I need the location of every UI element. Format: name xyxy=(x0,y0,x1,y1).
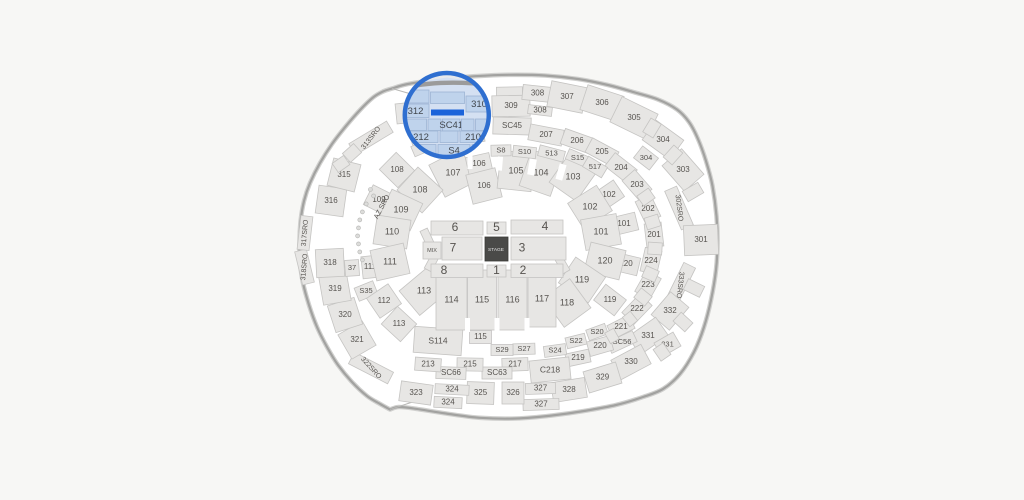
svg-text:220: 220 xyxy=(593,341,607,350)
svg-text:320: 320 xyxy=(338,310,352,319)
svg-text:SC45: SC45 xyxy=(502,121,523,130)
svg-text:101: 101 xyxy=(617,219,631,228)
svg-text:108: 108 xyxy=(390,165,404,174)
svg-text:S22: S22 xyxy=(569,336,582,345)
svg-text:37: 37 xyxy=(348,263,356,272)
svg-text:S35: S35 xyxy=(359,286,372,295)
svg-text:S20: S20 xyxy=(590,327,603,336)
svg-text:330: 330 xyxy=(624,357,638,366)
svg-text:307: 307 xyxy=(560,92,574,101)
svg-text:120: 120 xyxy=(597,255,612,265)
svg-text:C218: C218 xyxy=(540,364,561,374)
svg-text:106: 106 xyxy=(472,159,486,168)
svg-text:1: 1 xyxy=(493,263,500,277)
svg-text:204: 204 xyxy=(614,163,628,172)
svg-text:S114: S114 xyxy=(428,335,447,345)
svg-text:221: 221 xyxy=(614,322,628,331)
svg-text:332: 332 xyxy=(663,306,677,315)
svg-text:8: 8 xyxy=(441,263,448,277)
svg-text:207: 207 xyxy=(539,130,553,139)
svg-text:201: 201 xyxy=(647,230,661,239)
svg-text:203: 203 xyxy=(630,180,644,189)
svg-text:107: 107 xyxy=(445,167,460,177)
svg-text:325: 325 xyxy=(474,388,488,397)
svg-text:104: 104 xyxy=(533,167,548,177)
svg-text:101: 101 xyxy=(593,226,608,236)
svg-text:327: 327 xyxy=(534,384,548,393)
svg-text:116: 116 xyxy=(505,294,519,304)
svg-text:110: 110 xyxy=(385,226,399,236)
svg-text:329: 329 xyxy=(596,373,610,382)
svg-text:305: 305 xyxy=(627,113,641,122)
svg-text:309: 309 xyxy=(504,101,518,110)
svg-text:S29: S29 xyxy=(495,345,508,354)
svg-text:308: 308 xyxy=(533,106,547,115)
svg-text:304: 304 xyxy=(640,153,653,162)
svg-text:222: 222 xyxy=(630,304,644,313)
svg-text:6: 6 xyxy=(452,220,459,234)
svg-text:113: 113 xyxy=(417,285,431,295)
svg-text:326: 326 xyxy=(506,388,520,397)
svg-text:2: 2 xyxy=(520,263,527,277)
svg-text:304: 304 xyxy=(656,135,670,144)
svg-text:102: 102 xyxy=(582,201,597,211)
svg-text:318: 318 xyxy=(323,258,337,267)
svg-text:321: 321 xyxy=(350,335,364,344)
svg-text:114: 114 xyxy=(444,294,458,304)
svg-text:115: 115 xyxy=(475,294,489,304)
svg-text:SC63: SC63 xyxy=(487,368,508,377)
svg-text:105: 105 xyxy=(508,165,523,175)
svg-text:118: 118 xyxy=(560,297,574,307)
svg-text:331: 331 xyxy=(641,331,655,340)
svg-text:323: 323 xyxy=(409,388,423,397)
svg-text:112: 112 xyxy=(378,296,391,305)
svg-text:STAGE: STAGE xyxy=(488,247,504,253)
svg-text:327: 327 xyxy=(534,400,548,409)
svg-text:SC66: SC66 xyxy=(441,368,462,377)
svg-text:S24: S24 xyxy=(548,345,561,354)
svg-text:303: 303 xyxy=(676,165,690,174)
svg-text:513: 513 xyxy=(545,148,558,157)
svg-text:SC41: SC41 xyxy=(439,120,463,131)
svg-text:119: 119 xyxy=(604,295,617,304)
svg-text:S8: S8 xyxy=(496,145,505,154)
svg-text:219: 219 xyxy=(571,353,585,362)
svg-text:324: 324 xyxy=(441,398,455,407)
svg-text:3: 3 xyxy=(519,241,526,255)
svg-text:S27: S27 xyxy=(517,344,530,353)
svg-text:308: 308 xyxy=(531,89,545,98)
svg-text:213: 213 xyxy=(421,360,435,369)
svg-text:MIX: MIX xyxy=(427,248,437,254)
svg-text:108: 108 xyxy=(412,184,427,194)
svg-text:306: 306 xyxy=(595,98,609,107)
svg-text:224: 224 xyxy=(644,256,658,265)
svg-text:111: 111 xyxy=(383,256,397,266)
svg-text:106: 106 xyxy=(477,181,491,190)
svg-text:7: 7 xyxy=(450,241,457,255)
svg-text:206: 206 xyxy=(570,136,584,145)
svg-text:517: 517 xyxy=(589,162,602,171)
svg-text:117: 117 xyxy=(535,293,549,303)
svg-text:324: 324 xyxy=(445,385,459,394)
svg-text:119: 119 xyxy=(575,274,589,284)
svg-text:4: 4 xyxy=(542,219,549,233)
svg-text:109: 109 xyxy=(393,204,408,214)
svg-text:115: 115 xyxy=(474,332,487,341)
svg-text:103: 103 xyxy=(565,171,580,181)
svg-text:328: 328 xyxy=(562,385,576,394)
svg-text:301: 301 xyxy=(694,235,708,244)
svg-text:205: 205 xyxy=(595,147,609,156)
svg-text:113: 113 xyxy=(393,319,406,328)
svg-text:319: 319 xyxy=(328,284,342,293)
svg-text:S15: S15 xyxy=(571,153,584,162)
svg-text:312: 312 xyxy=(408,106,424,117)
svg-text:316: 316 xyxy=(324,196,338,205)
svg-text:5: 5 xyxy=(493,220,500,234)
svg-text:S10: S10 xyxy=(518,147,531,156)
